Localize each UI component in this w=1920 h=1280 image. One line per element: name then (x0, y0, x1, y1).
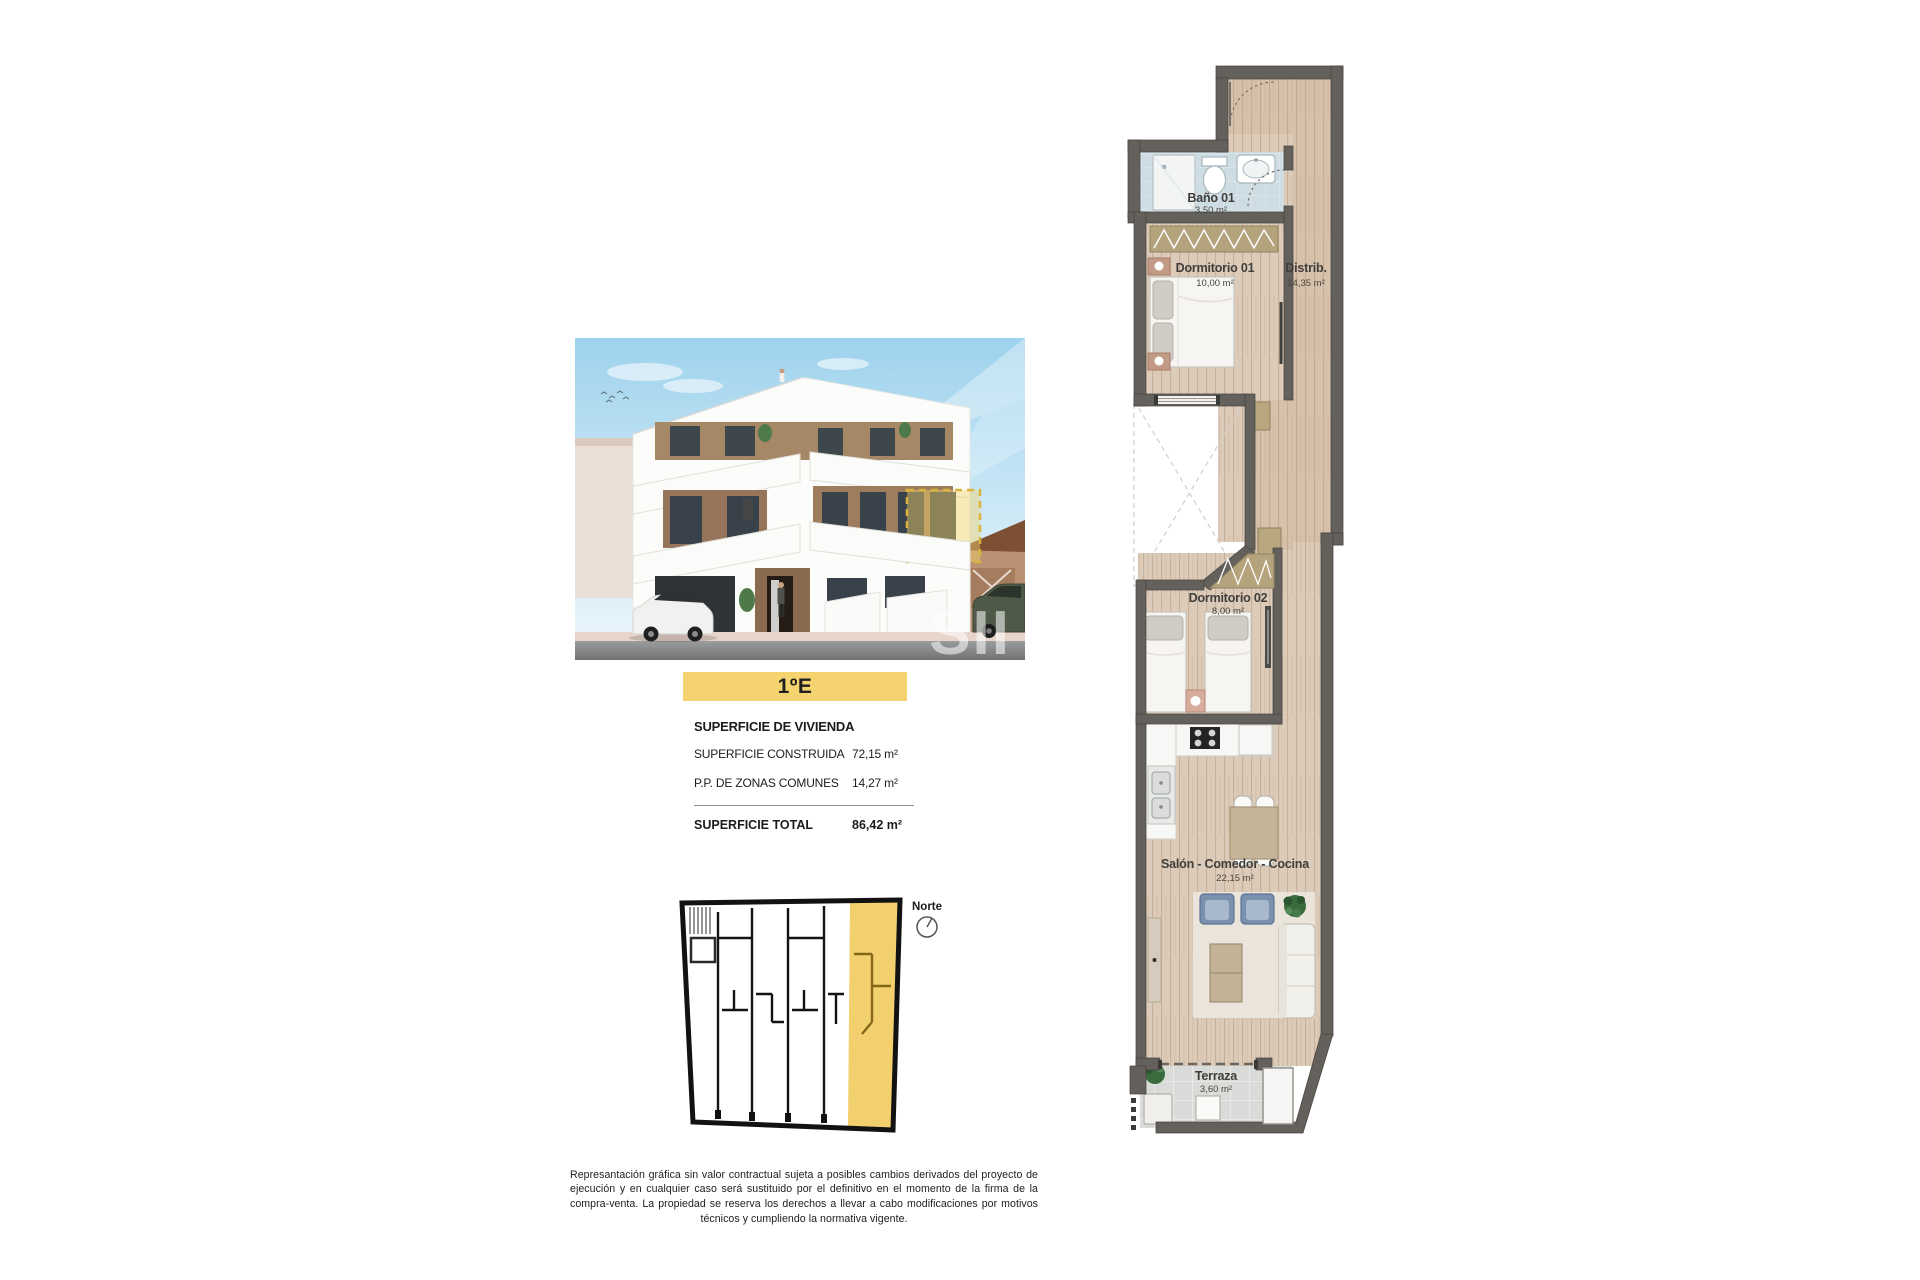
legal-disclaimer: Represantación gráfica sin valor contrac… (570, 1168, 1038, 1227)
bed-single (1205, 612, 1251, 712)
room-area-dorm1: 10,00 m² (1196, 278, 1234, 289)
site-plan-art: Norte (676, 894, 948, 1146)
wardrobe-dorm1 (1150, 226, 1278, 252)
plant-icon (758, 424, 772, 442)
sofa (1279, 924, 1315, 1018)
surface-total-label: SUPERFICIE TOTAL (694, 818, 852, 832)
surface-row-value: 14,27 m² (852, 776, 914, 790)
surface-divider (694, 805, 914, 806)
terrace-storage (1263, 1068, 1293, 1124)
balcony-person (743, 498, 753, 520)
window-marks (1154, 395, 1220, 405)
site-plan: Norte (676, 894, 948, 1146)
dining-table (1230, 807, 1278, 859)
north-label: Norte (912, 901, 942, 913)
surface-row-label: SUPERFICIE CONSTRUIDA (694, 747, 852, 761)
wardrobe-dorm2 (1265, 606, 1271, 668)
terrace-table (1196, 1096, 1220, 1120)
room-area-salon: 22,15 m² (1216, 873, 1254, 884)
stove (1190, 727, 1220, 749)
room-label-bano: Baño 01 (1187, 191, 1234, 205)
building-render: SII (575, 338, 1025, 660)
building-render-art: SII (575, 338, 1025, 660)
room-label-salon: Salón - Comedor - Cocina (1161, 857, 1310, 871)
bathroom-sink (1237, 155, 1275, 183)
entry-plant-icon (739, 588, 755, 612)
apartment-floor-plan: Baño 01 3,50 m² Dormitorio 01 10,00 m² D… (1098, 56, 1362, 1148)
terrace-open-edge (1131, 1098, 1136, 1130)
kitchen-sink (1148, 766, 1175, 824)
room-area-bano: 3,50 m² (1195, 205, 1227, 216)
neighbor-building-left (575, 438, 641, 598)
room-label-distrib: Distrib. (1285, 261, 1326, 275)
sliding-door-dorm1 (1280, 302, 1283, 364)
surface-row: SUPERFICIE CONSTRUIDA 72,15 m² (694, 747, 914, 761)
plant-icon (899, 422, 911, 438)
unit-label-badge: 1ºE (683, 672, 907, 701)
room-area-terraza: 3,60 m² (1200, 1084, 1232, 1095)
surface-total-value: 86,42 m² (852, 818, 914, 832)
room-label-terraza: Terraza (1195, 1069, 1238, 1083)
site-plan-walls (718, 906, 844, 1121)
tv-sideboard (1148, 918, 1161, 1002)
marketing-sheet: SII 1ºE SUPERFICIE DE VIVIENDA SUPERFICI… (0, 0, 1920, 1280)
watermark: SII (929, 599, 1011, 660)
terrace-chair (1144, 1094, 1172, 1124)
room-area-dorm2: 8,00 m² (1212, 606, 1244, 617)
toilet (1202, 157, 1227, 194)
site-plan-stairs (690, 907, 715, 962)
armchair (1200, 894, 1234, 924)
room-area-distrib: 14,35 m² (1287, 278, 1325, 289)
surface-row-label: P.P. DE ZONAS COMUNES (694, 776, 852, 790)
room-label-dorm1: Dormitorio 01 (1176, 261, 1255, 275)
bed-single (1142, 612, 1186, 712)
surface-table: SUPERFICIE DE VIVIENDA SUPERFICIE CONSTR… (694, 719, 914, 832)
surface-total-row: SUPERFICIE TOTAL 86,42 m² (694, 818, 914, 832)
north-compass: Norte (912, 901, 942, 937)
surface-row: P.P. DE ZONAS COMUNES 14,27 m² (694, 776, 914, 790)
neighbor-cornice (575, 438, 641, 446)
armchair (1241, 894, 1274, 924)
nightstand (1186, 690, 1205, 712)
kitchen-cabinet (1239, 725, 1272, 755)
room-label-dorm2: Dormitorio 02 (1189, 591, 1268, 605)
rooftop-person (780, 369, 785, 382)
surface-table-heading: SUPERFICIE DE VIVIENDA (694, 719, 914, 734)
floor-plan-art: Baño 01 3,50 m² Dormitorio 01 10,00 m² D… (1098, 56, 1362, 1148)
coffee-tables (1210, 944, 1242, 1002)
floor-2-band (655, 422, 953, 460)
surface-row-value: 72,15 m² (852, 747, 914, 761)
